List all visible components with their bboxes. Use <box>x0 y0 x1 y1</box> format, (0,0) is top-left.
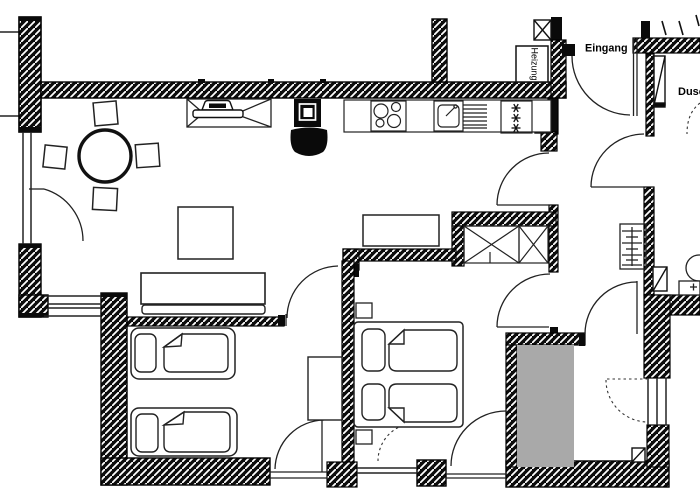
svg-text:Eingang: Eingang <box>585 43 628 55</box>
svg-text:Dusche: Dusche <box>678 86 700 98</box>
svg-text:Heizung: Heizung <box>530 47 540 80</box>
